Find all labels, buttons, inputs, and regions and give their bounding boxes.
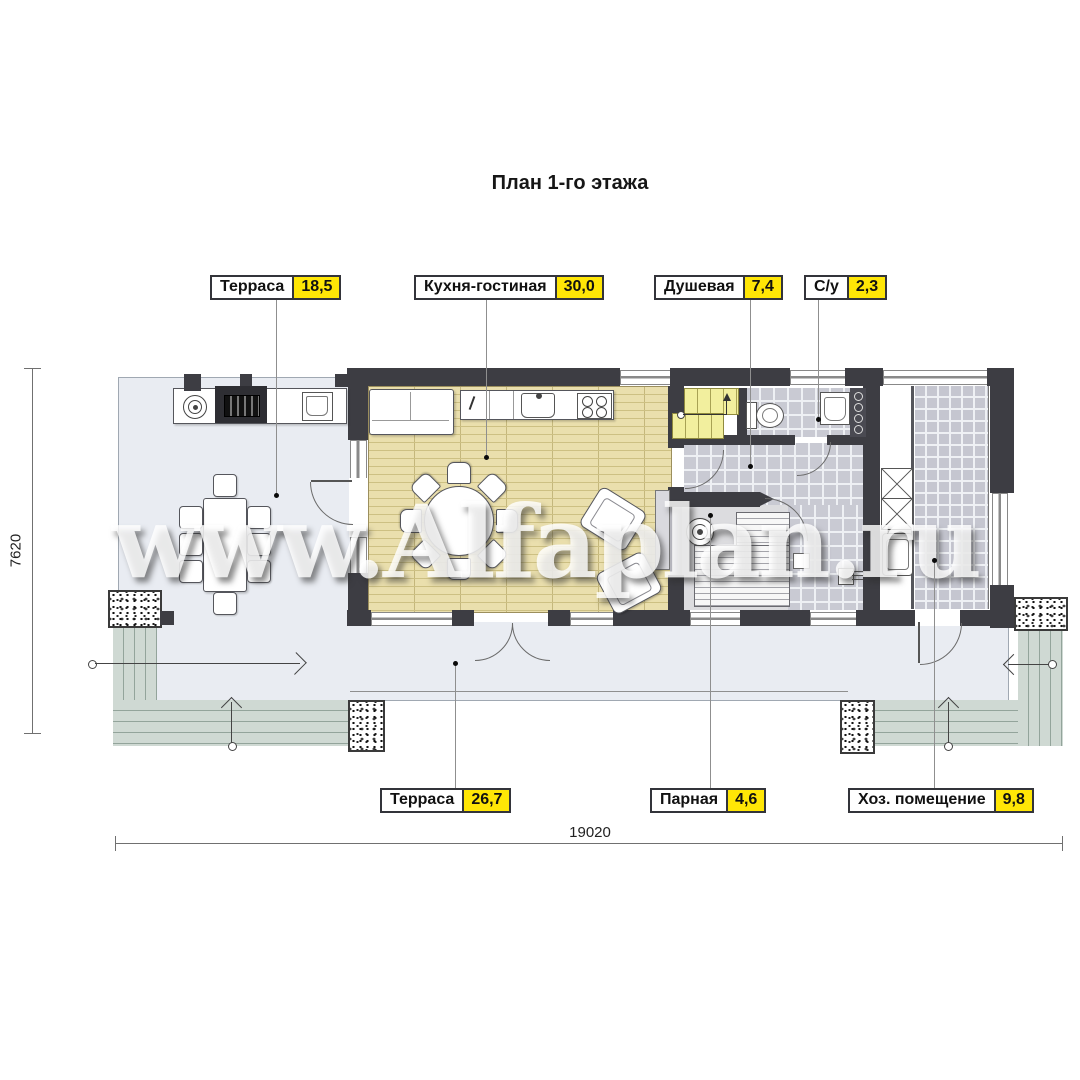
entry-marker-circle (228, 742, 237, 751)
room-label-kitchen-living: Кухня-гостиная 30,0 (414, 275, 604, 300)
radiator-knob (854, 392, 863, 401)
leader-line (455, 663, 456, 788)
room-area-badge: 7,4 (743, 277, 781, 298)
planter-bottom-right (840, 700, 875, 754)
leader-dot (453, 661, 458, 666)
watermark: www.Alfaplan.ru (112, 486, 1032, 598)
entry-marker-circle (1048, 660, 1057, 669)
stove-burner (582, 396, 593, 407)
terrace-post (240, 374, 252, 386)
room-label-utility: Хоз. помещение 9,8 (848, 788, 1034, 813)
wall-north (347, 368, 620, 386)
dimension-line-horizontal (115, 843, 1063, 844)
planter-bottom-left (348, 700, 385, 752)
wall-south (960, 610, 1014, 626)
window-north-utility (883, 370, 989, 385)
room-area-badge: 26,7 (462, 790, 509, 811)
steps-right-vertical (1018, 628, 1063, 746)
room-area-badge: 4,6 (726, 790, 764, 811)
leader-line (750, 297, 751, 467)
leader-line (276, 297, 277, 496)
wall-south-post (452, 610, 474, 626)
faucet-dot (536, 393, 542, 399)
entry-marker-circle (88, 660, 97, 669)
window-south-sauna (690, 612, 742, 626)
wall-east (990, 368, 1014, 493)
window-south-living (371, 612, 454, 626)
dimension-text: 19020 (569, 824, 611, 841)
dimension-line-vertical (32, 368, 33, 733)
stove-burner (596, 396, 607, 407)
room-name: Душевая (656, 277, 743, 298)
room-name: С/у (806, 277, 847, 298)
wall-west (348, 368, 368, 440)
radiator-knob (854, 425, 863, 434)
room-area-badge: 18,5 (292, 277, 339, 298)
dimension-tick (1062, 836, 1063, 851)
dimension-text: 7620 (8, 534, 25, 567)
dining-chair (447, 462, 471, 484)
leader-line (934, 560, 935, 788)
terrace-post (348, 611, 361, 625)
towel-radiator (850, 388, 866, 437)
room-label-shower: Душевая 7,4 (654, 275, 783, 300)
leader-dot (484, 455, 489, 460)
leader-line (818, 297, 819, 420)
terrace-sink-fixture (302, 392, 333, 421)
wall-south-post (548, 610, 570, 626)
room-name: Хоз. помещение (850, 790, 994, 811)
stairs-direction-line (683, 414, 726, 415)
toilet-bowl-inner (762, 408, 778, 423)
room-label-terrace-bottom: Терраса 26,7 (380, 788, 511, 813)
stove-fixture (577, 393, 612, 419)
dimension-value-horizontal: 19020 (555, 824, 625, 841)
terrace-bottom-slab (349, 622, 1009, 701)
sofa (369, 389, 454, 435)
knife-icon (469, 396, 476, 410)
floor-plan-canvas: План 1-го этажа (0, 0, 1080, 1080)
room-area-badge: 2,3 (847, 277, 885, 298)
page-title: План 1-го этажа (340, 172, 800, 195)
stairs-direction-arrowhead (723, 393, 731, 401)
window-west (350, 440, 367, 480)
room-name: Терраса (212, 277, 292, 298)
sofa-cushion-line (410, 392, 411, 420)
entry-marker-circle (944, 742, 953, 751)
kitchen-sink-fixture (521, 393, 555, 418)
terrace-edge-line (350, 691, 848, 692)
dimension-value-vertical: 7620 (8, 521, 25, 581)
wall-north (670, 368, 790, 386)
terrace-post (160, 611, 174, 625)
terrace-sink-basin (306, 396, 328, 416)
door-leaf-utility (918, 622, 920, 663)
dimension-tick (115, 836, 116, 851)
leader-dot (816, 417, 821, 422)
wall-north (845, 368, 883, 386)
wall-south (740, 610, 810, 626)
counter-divider (489, 391, 490, 419)
room-name: Терраса (382, 790, 462, 811)
wall-south (613, 610, 690, 626)
leader-dot (932, 558, 937, 563)
wc-sink-basin (824, 397, 846, 421)
room-label-sauna: Парная 4,6 (650, 788, 766, 813)
room-name: Кухня-гостиная (416, 277, 555, 298)
leader-line (710, 515, 711, 788)
radiator-knob (854, 414, 863, 423)
stove-burner (582, 407, 593, 418)
room-area-badge: 30,0 (555, 277, 602, 298)
leader-dot (748, 464, 753, 469)
sofa-back-line (372, 420, 449, 421)
room-label-wc: С/у 2,3 (804, 275, 887, 300)
grill-grate (224, 395, 260, 417)
room-name: Парная (652, 790, 726, 811)
stairs-direction-origin (677, 411, 685, 419)
bbq-burner-core (193, 405, 198, 410)
radiator-knob (854, 403, 863, 412)
window-south-shower (810, 612, 858, 626)
dimension-tick (24, 733, 41, 734)
room-label-terrace-top: Терраса 18,5 (210, 275, 341, 300)
leader-line (486, 297, 487, 458)
terrace-post (184, 374, 201, 391)
counter-divider (513, 391, 514, 419)
entry-arrow-left (95, 663, 300, 664)
window-north-kitchen (620, 370, 672, 385)
planter-right (1014, 597, 1068, 631)
window-south-living2 (570, 612, 615, 626)
wall-marker (1001, 398, 1007, 404)
terrace-post (335, 374, 348, 387)
leader-dot (274, 493, 279, 498)
stove-burner (596, 407, 607, 418)
wall-south (856, 610, 915, 626)
door-leaf-terrace (311, 480, 352, 482)
kitchen-counter (460, 390, 614, 420)
room-area-badge: 9,8 (994, 790, 1032, 811)
dimension-tick (24, 368, 41, 369)
leader-dot (708, 513, 713, 518)
